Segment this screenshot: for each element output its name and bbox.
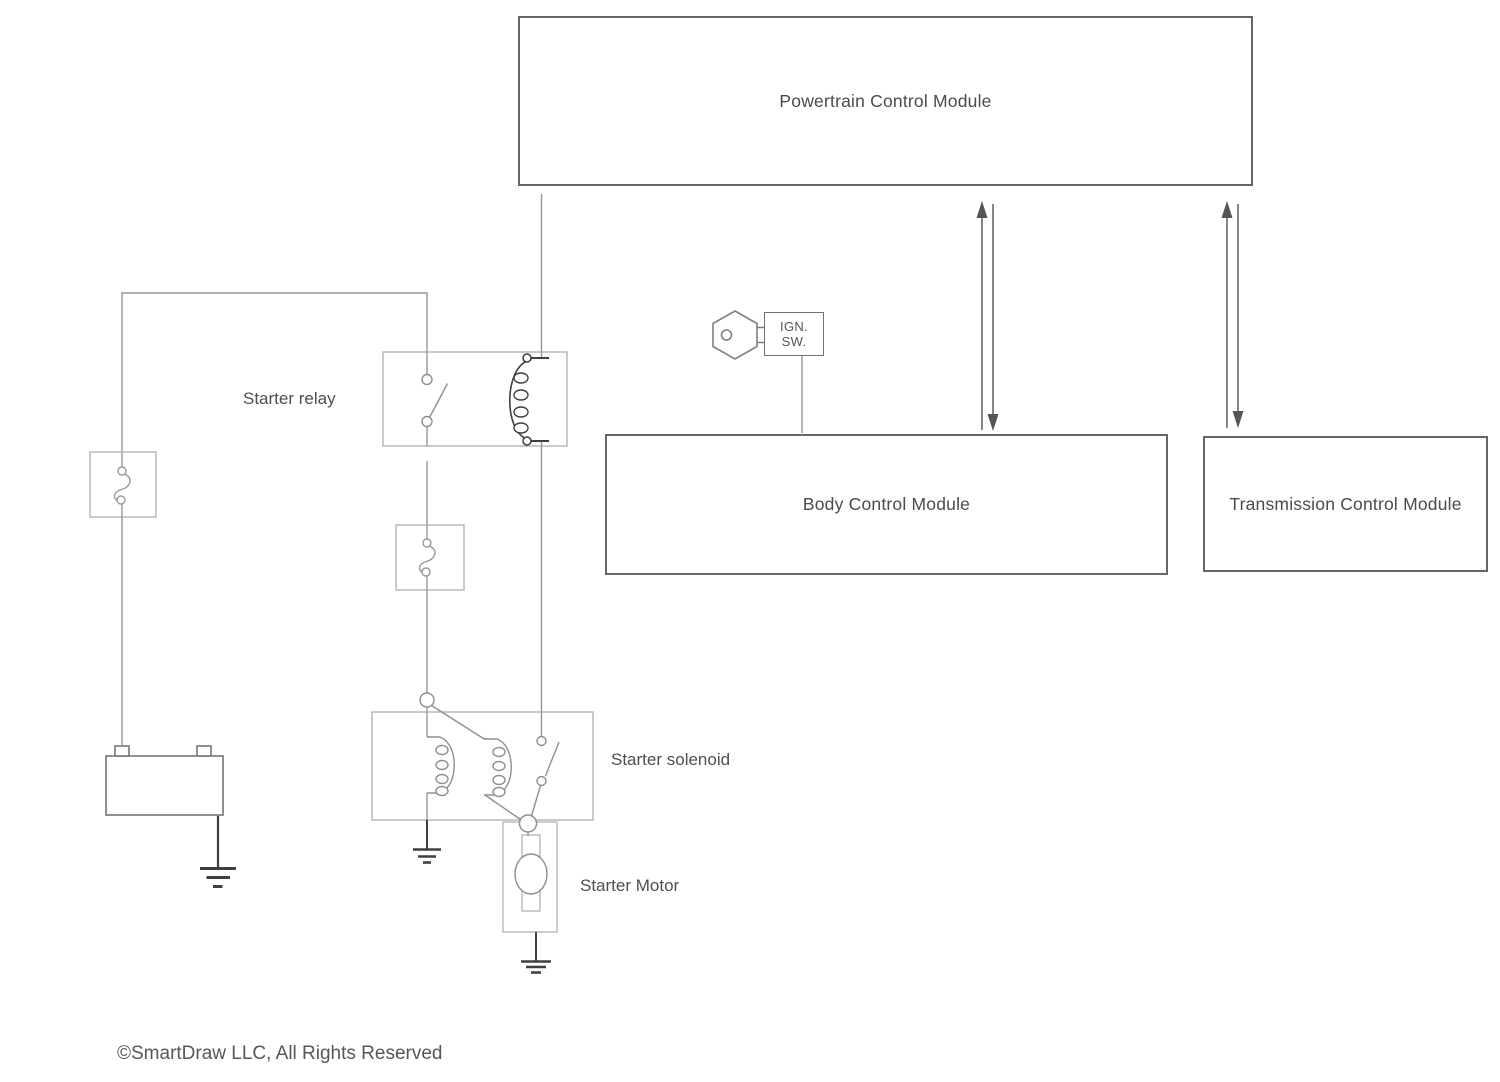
arrow-up-icon bbox=[1222, 201, 1233, 218]
battery-positive-label: + bbox=[112, 759, 126, 777]
ignition-switch-label-line2: SW. bbox=[782, 334, 807, 349]
motor-ground-icon bbox=[521, 932, 551, 973]
pcm-tcm-arrows bbox=[1222, 201, 1244, 428]
battery-ground-icon bbox=[200, 816, 236, 887]
battery-icon bbox=[106, 746, 223, 815]
pcm-bcm-arrows bbox=[977, 201, 999, 431]
relay-switch-icon bbox=[422, 375, 448, 427]
battery-fuse-icon bbox=[114, 453, 130, 517]
relay-fuse-box bbox=[396, 525, 464, 590]
relay-coil-icon bbox=[510, 354, 549, 445]
starter-relay-box bbox=[383, 352, 567, 446]
powertrain-control-module-box: Powertrain Control Module bbox=[518, 16, 1253, 186]
starter-solenoid-box bbox=[372, 712, 593, 820]
wiring-diagram: Powertrain Control Module Body Control M… bbox=[0, 0, 1500, 1082]
starter-relay-label: Starter relay bbox=[243, 389, 336, 409]
solenoid-coil-1-icon bbox=[427, 737, 454, 796]
arrow-down-icon bbox=[988, 414, 999, 431]
solenoid-pivot bbox=[420, 693, 485, 740]
transmission-control-module-box: Transmission Control Module bbox=[1203, 436, 1488, 572]
bcm-label: Body Control Module bbox=[803, 494, 970, 515]
motor-symbol-label: M bbox=[522, 866, 540, 881]
arrow-down-icon bbox=[1233, 411, 1244, 428]
starter-motor-label: Starter Motor bbox=[580, 876, 679, 896]
key-icon bbox=[713, 311, 764, 359]
ignition-switch-box: IGN. SW. bbox=[764, 312, 824, 356]
battery-fuse-box bbox=[90, 452, 156, 517]
ignition-switch-label-line1: IGN. bbox=[780, 319, 808, 334]
solenoid-coil-2-icon bbox=[484, 739, 521, 820]
pcm-label: Powertrain Control Module bbox=[779, 91, 991, 112]
relay-fuse-icon bbox=[419, 525, 435, 590]
starter-solenoid-label: Starter solenoid bbox=[611, 750, 730, 770]
tcm-label: Transmission Control Module bbox=[1229, 494, 1461, 515]
copyright-text: ©SmartDraw LLC, All Rights Reserved bbox=[117, 1043, 443, 1065]
solenoid-switch-icon bbox=[532, 737, 560, 817]
body-control-module-box: Body Control Module bbox=[605, 434, 1168, 575]
battery-negative-label: − bbox=[196, 758, 212, 776]
wire-battery-to-relay bbox=[122, 293, 427, 452]
solenoid-plunger-circle bbox=[520, 815, 537, 832]
arrow-up-icon bbox=[977, 201, 988, 218]
solenoid-ground-icon bbox=[413, 820, 441, 863]
